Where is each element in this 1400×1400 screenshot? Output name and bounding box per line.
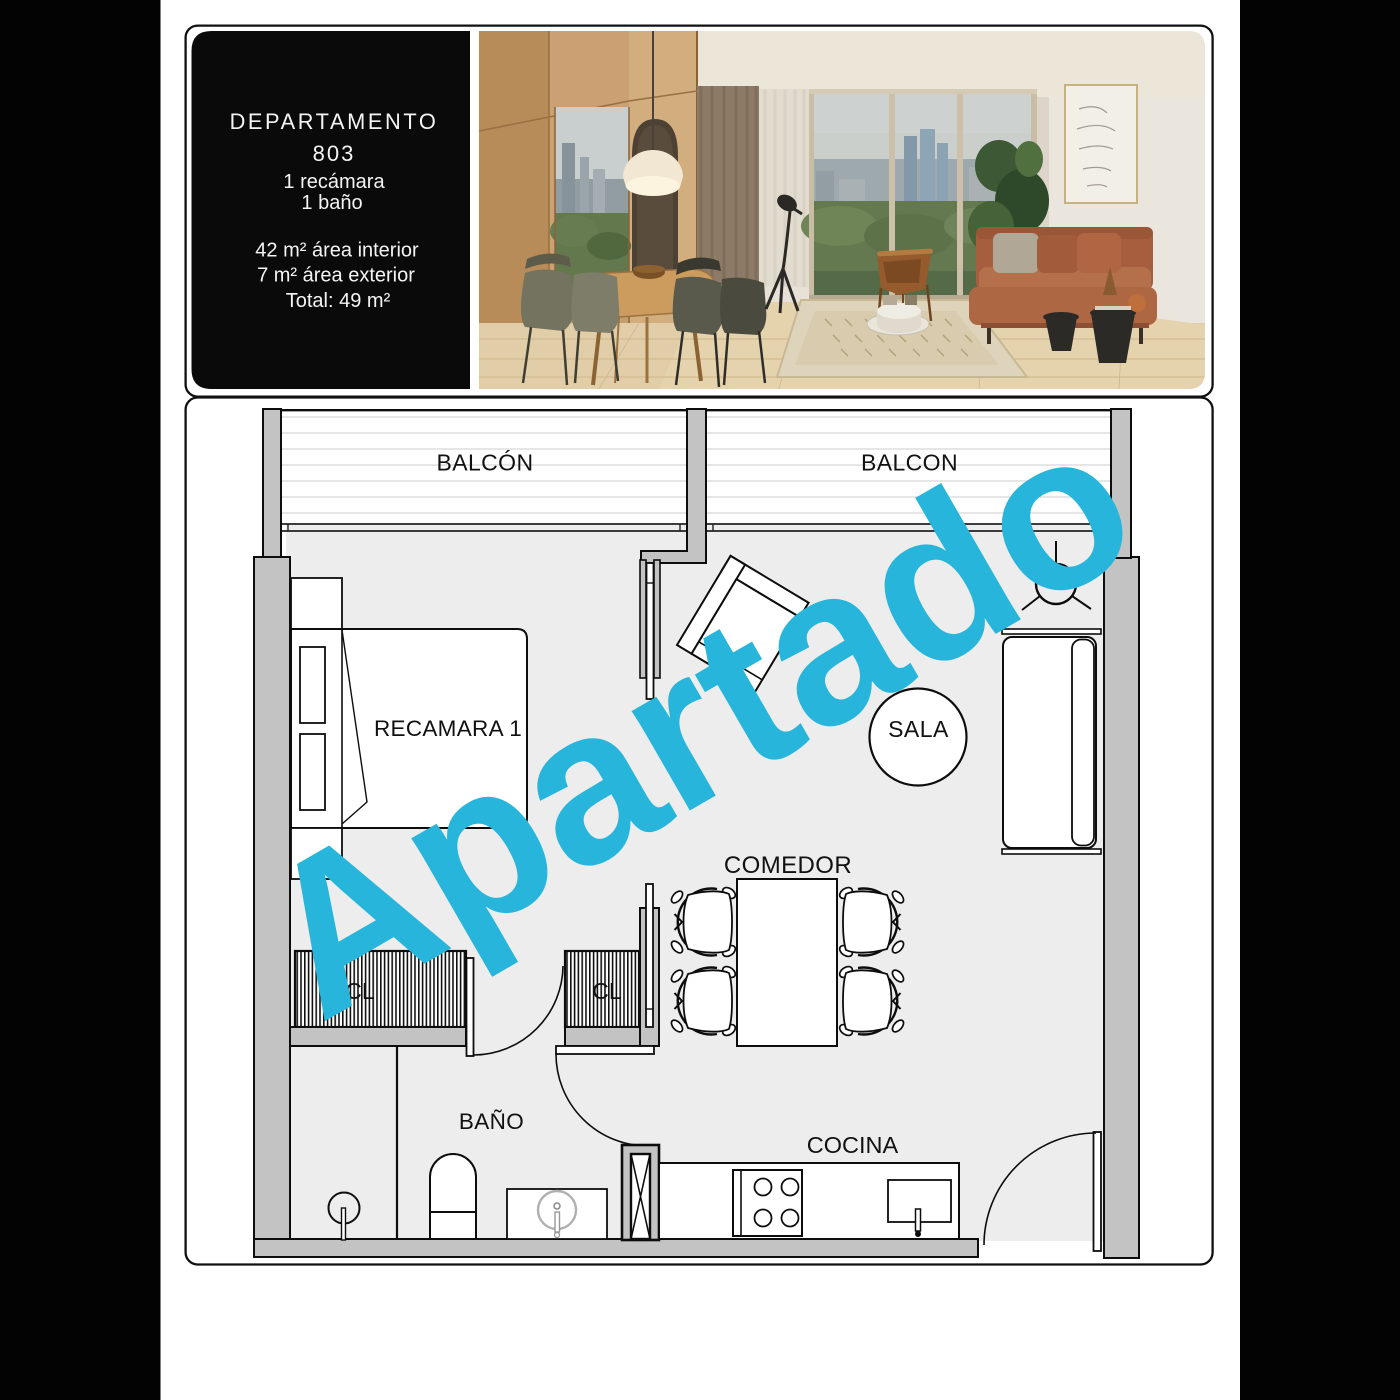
svg-text:42 m² área interior: 42 m² área interior: [255, 240, 419, 262]
svg-text:COCINA: COCINA: [807, 1132, 899, 1158]
svg-text:DEPARTAMENTO: DEPARTAMENTO: [230, 109, 439, 134]
svg-text:COMEDOR: COMEDOR: [724, 852, 852, 879]
svg-text:CL: CL: [592, 978, 622, 1004]
svg-text:7 m² área exterior: 7 m² área exterior: [257, 265, 415, 287]
svg-text:Total: 49 m²: Total: 49 m²: [286, 290, 391, 312]
svg-text:BALCÓN: BALCÓN: [437, 450, 534, 476]
svg-text:1 recámara: 1 recámara: [283, 171, 385, 193]
svg-text:803: 803: [313, 141, 356, 166]
svg-text:BAÑO: BAÑO: [459, 1109, 524, 1134]
svg-text:1 baño: 1 baño: [301, 192, 362, 214]
